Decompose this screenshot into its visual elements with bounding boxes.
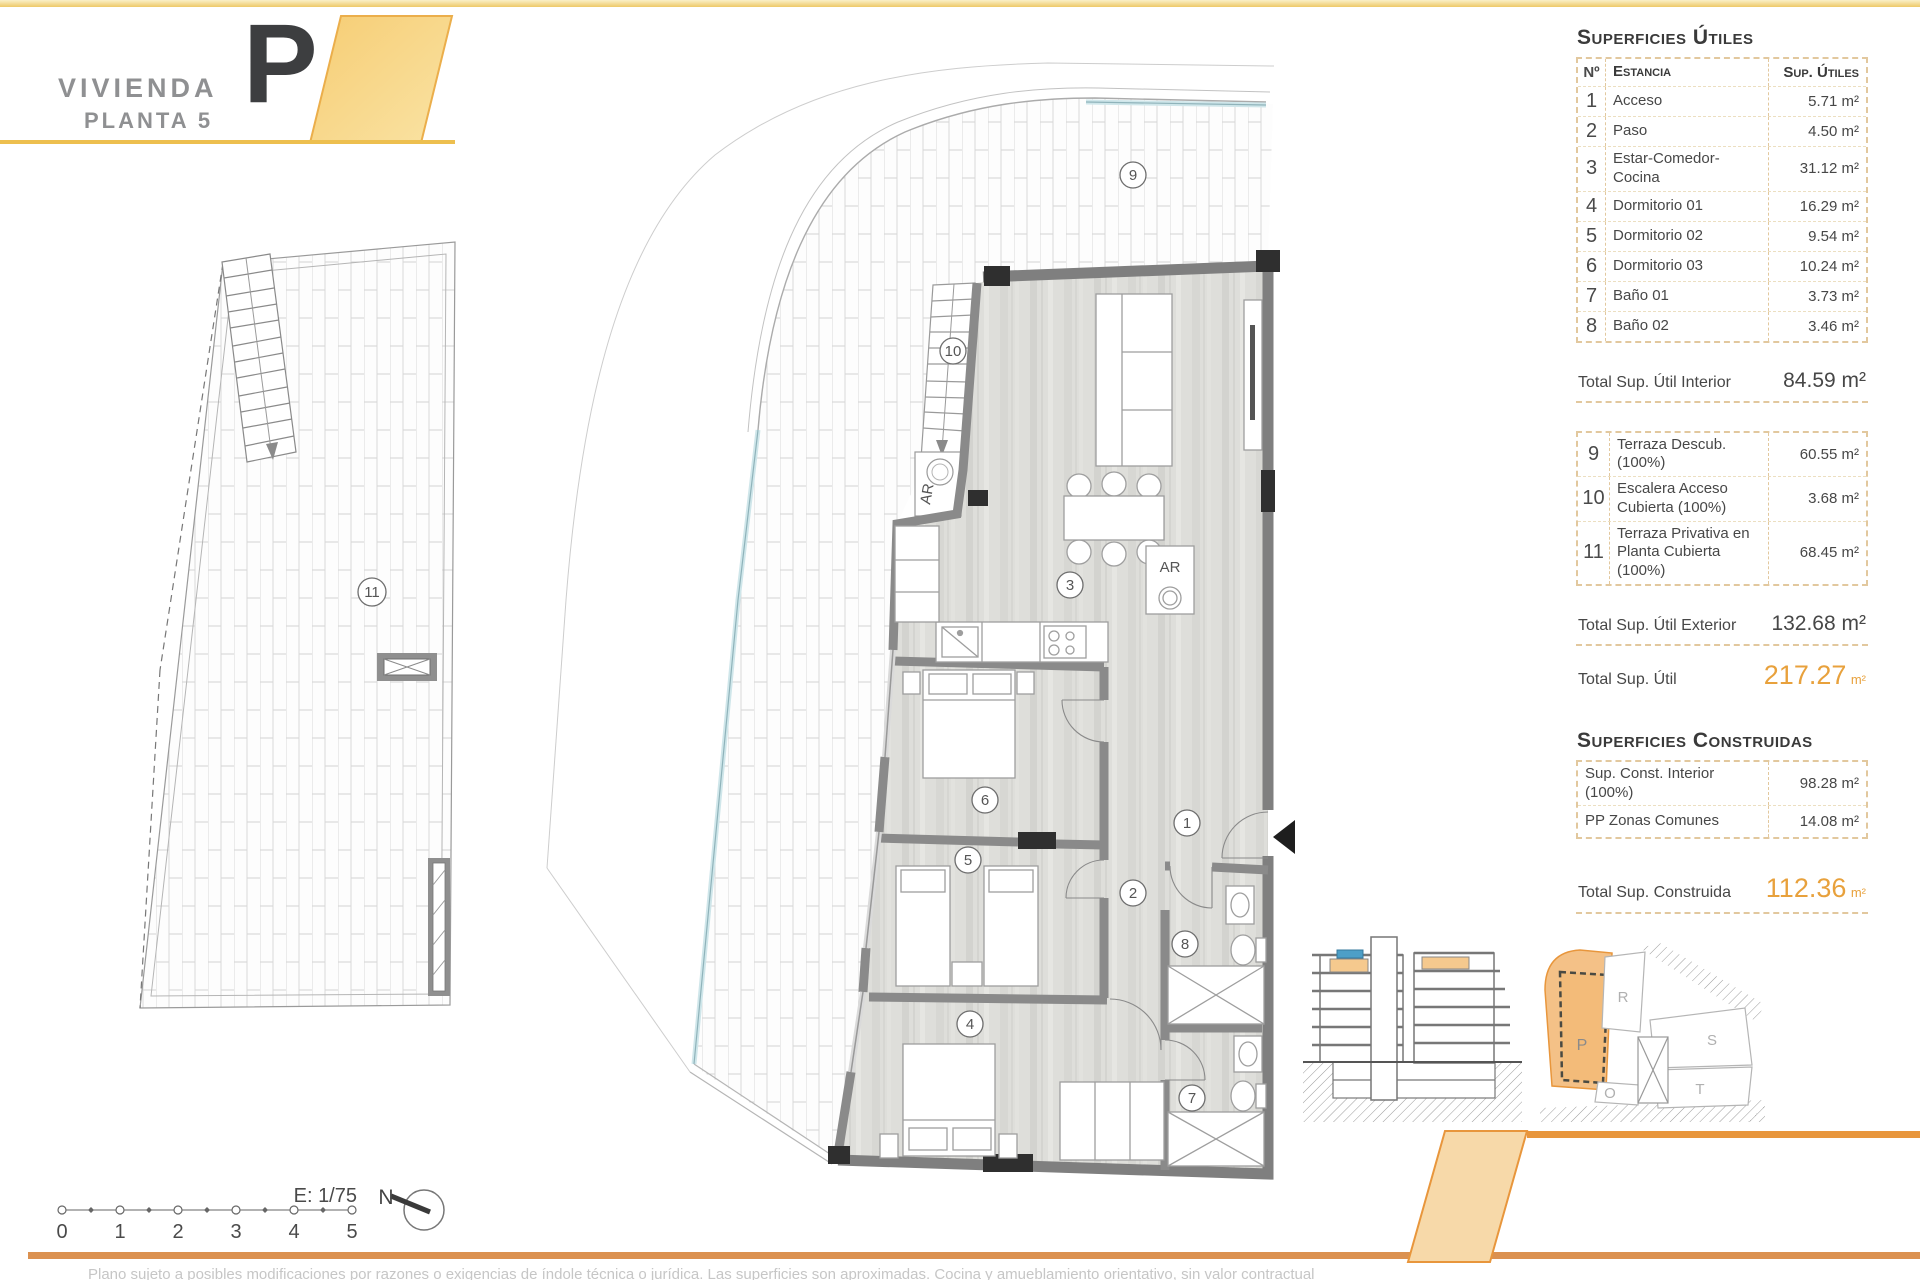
svg-text:5: 5 xyxy=(964,852,972,869)
svg-text:1: 1 xyxy=(1183,815,1191,832)
scale-label: E: 1/75 xyxy=(294,1185,357,1207)
table-row: 9Terraza Descub.(100%)60.55 m² xyxy=(1578,433,1866,477)
table-row: 5Dormitorio 029.54 m² xyxy=(1578,221,1866,251)
svg-text:4: 4 xyxy=(966,1016,974,1033)
skylight xyxy=(377,653,437,681)
built-areas-title: Superficies Construidas xyxy=(1577,729,1868,753)
exterior-areas-table: 9Terraza Descub.(100%)60.55 m² 10Escaler… xyxy=(1576,431,1868,586)
room-label-7: 7 xyxy=(1179,1085,1205,1111)
useful-areas-title: Superficies Útiles xyxy=(1577,26,1868,50)
table-row: 1Acceso5.71 m² xyxy=(1578,86,1866,116)
site-unit-p xyxy=(1560,972,1608,1083)
site-key-plan: P R S T O xyxy=(1540,943,1765,1122)
svg-text:2: 2 xyxy=(1129,885,1137,902)
apartment-plan: AR xyxy=(547,63,1295,1176)
plan-sheet: VIVIENDA PLANTA 5 P xyxy=(0,0,1920,1280)
section-core xyxy=(1371,937,1397,1100)
table-row: 3Estar-Comedor-Cocina31.12 m² xyxy=(1578,146,1866,191)
sheet-title: VIVIENDA xyxy=(58,73,218,103)
svg-text:5: 5 xyxy=(346,1221,357,1243)
table-header-row: Nº Estancia Sup. Útiles xyxy=(1578,59,1866,86)
total-built-row: Total Sup. Construida 112.36 m² xyxy=(1576,869,1868,914)
room-label-9: 9 xyxy=(1120,162,1146,188)
room-label-11: 11 xyxy=(358,578,386,606)
disclaimer-text: Plano sujeto a posibles modificaciones p… xyxy=(88,1266,1315,1280)
scale-bar: 0 1 2 3 4 5 E: 1/75 xyxy=(56,1185,357,1243)
svg-text:0: 0 xyxy=(56,1221,67,1243)
room-label-1: 1 xyxy=(1174,810,1200,836)
header-parallelogram xyxy=(310,16,452,143)
total-useful-row: Total Sup. Útil 217.27 m² xyxy=(1576,656,1868,699)
roof-vent-strip xyxy=(428,858,450,996)
section-highlight-left xyxy=(1330,959,1368,972)
site-label-o: O xyxy=(1604,1085,1616,1102)
section-pool xyxy=(1337,950,1363,958)
site-label-t: T xyxy=(1695,1081,1704,1098)
svg-text:8: 8 xyxy=(1181,936,1189,953)
svg-text:3: 3 xyxy=(230,1221,241,1243)
room-label-4: 4 xyxy=(957,1011,983,1037)
table-row: 2Paso4.50 m² xyxy=(1578,116,1866,146)
svg-text:1: 1 xyxy=(114,1221,125,1243)
sheet-header: VIVIENDA PLANTA 5 P xyxy=(0,1,455,144)
site-label-p: P xyxy=(1577,1037,1588,1054)
room-label-10: 10 xyxy=(940,338,966,364)
svg-text:11: 11 xyxy=(364,584,380,601)
svg-text:2: 2 xyxy=(172,1221,183,1243)
unit-letter: P xyxy=(243,1,318,126)
room-label-5: 5 xyxy=(955,847,981,873)
svg-text:9: 9 xyxy=(1129,167,1137,184)
room-label-6: 6 xyxy=(972,787,998,813)
table-row: Sup. Const. Interior (100%)98.28 m² xyxy=(1578,762,1866,806)
bottom-accent-bar xyxy=(28,1252,1920,1259)
sheet-subtitle: PLANTA 5 xyxy=(84,108,213,133)
hall-ar-closet xyxy=(1146,546,1194,614)
room-label-2: 2 xyxy=(1120,880,1146,906)
bottom-right-parallelogram xyxy=(1408,1131,1527,1262)
tv-unit xyxy=(1244,300,1262,450)
north-label: N xyxy=(378,1186,393,1209)
room-label-8: 8 xyxy=(1172,931,1198,957)
section-highlight-right xyxy=(1422,957,1469,969)
sofa xyxy=(1096,294,1172,466)
roof-terrace-plan: 11 xyxy=(140,242,455,1008)
table-row: 8Baño 023.46 m² xyxy=(1578,311,1866,341)
svg-text:4: 4 xyxy=(288,1221,299,1243)
total-interior-row: Total Sup. Útil Interior 84.59 m² xyxy=(1576,365,1868,403)
svg-text:6: 6 xyxy=(981,792,989,809)
site-label-r: R xyxy=(1618,989,1629,1006)
header-rule xyxy=(0,140,455,144)
bed-double-6 xyxy=(903,670,1034,778)
table-row: 11Terraza Privativa en Planta Cubierta (… xyxy=(1578,521,1866,584)
total-exterior-row: Total Sup. Útil Exterior 132.68 m² xyxy=(1576,608,1868,646)
table-row: 4Dormitorio 0116.29 m² xyxy=(1578,191,1866,221)
site-unit-o xyxy=(1595,1082,1640,1105)
svg-text:10: 10 xyxy=(945,343,962,360)
bottom-right-rule xyxy=(1527,1131,1920,1138)
svg-text:3: 3 xyxy=(1066,577,1074,594)
ar-label: AR xyxy=(917,482,937,506)
ar-label-hall: AR xyxy=(1160,559,1181,576)
svg-text:7: 7 xyxy=(1188,1090,1196,1107)
building-section-diagram xyxy=(1303,937,1522,1122)
north-arrow-icon: N xyxy=(378,1186,444,1230)
table-row: 10Escalera Acceso Cubierta (100%)3.68 m² xyxy=(1578,476,1866,521)
table-row: PP Zonas Comunes14.08 m² xyxy=(1578,805,1866,837)
table-row: 6Dormitorio 0310.24 m² xyxy=(1578,251,1866,281)
site-label-s: S xyxy=(1707,1032,1717,1049)
built-areas-table: Sup. Const. Interior (100%)98.28 m² PP Z… xyxy=(1576,760,1868,840)
table-row: 7Baño 013.73 m² xyxy=(1578,281,1866,311)
useful-areas-table: Nº Estancia Sup. Útiles 1Acceso5.71 m² 2… xyxy=(1576,57,1868,343)
entrance-arrow-icon xyxy=(1273,820,1295,854)
areas-panel: Superficies Útiles Nº Estancia Sup. Útil… xyxy=(1576,26,1868,914)
room-label-3: 3 xyxy=(1057,572,1083,598)
